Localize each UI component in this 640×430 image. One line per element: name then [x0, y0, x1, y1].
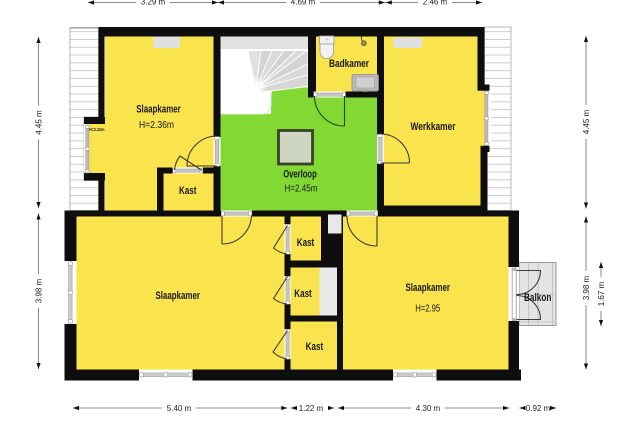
svg-text:3.98 m: 3.98 m: [34, 278, 43, 303]
svg-text:4.30 m: 4.30 m: [416, 404, 441, 413]
svg-text:Kast: Kast: [294, 288, 312, 300]
svg-text:1.22 m: 1.22 m: [299, 404, 324, 413]
svg-text:H=2.95: H=2.95: [415, 304, 440, 315]
svg-text:Slaapkamer: Slaapkamer: [405, 282, 450, 294]
svg-text:1.67 m: 1.67 m: [597, 281, 606, 306]
svg-text:H=2.22m: H=2.22m: [89, 127, 105, 132]
svg-text:0.92 m: 0.92 m: [526, 404, 551, 413]
svg-text:2.46 m: 2.46 m: [423, 0, 448, 6]
svg-text:H=2.36m: H=2.36m: [139, 120, 174, 131]
svg-text:Kast: Kast: [297, 237, 315, 249]
svg-text:3.29 m: 3.29 m: [141, 0, 166, 6]
svg-text:Werkkamer: Werkkamer: [411, 121, 457, 133]
svg-text:Kast: Kast: [306, 341, 324, 353]
svg-text:4.45 m: 4.45 m: [582, 109, 591, 134]
svg-text:3.98 m: 3.98 m: [582, 275, 591, 300]
svg-text:Slaapkamer: Slaapkamer: [136, 103, 181, 115]
svg-text:H=2.45m: H=2.45m: [285, 184, 318, 195]
svg-text:4.45 m: 4.45 m: [34, 110, 43, 135]
svg-text:Overloop: Overloop: [283, 169, 317, 181]
svg-text:5.40 m: 5.40 m: [167, 404, 192, 413]
svg-text:Kast: Kast: [179, 185, 197, 197]
svg-text:Slaapkamer: Slaapkamer: [155, 290, 200, 302]
svg-text:Badkamer: Badkamer: [329, 58, 370, 70]
svg-text:4.69 m: 4.69 m: [291, 0, 316, 6]
svg-text:Balkon: Balkon: [524, 292, 552, 304]
